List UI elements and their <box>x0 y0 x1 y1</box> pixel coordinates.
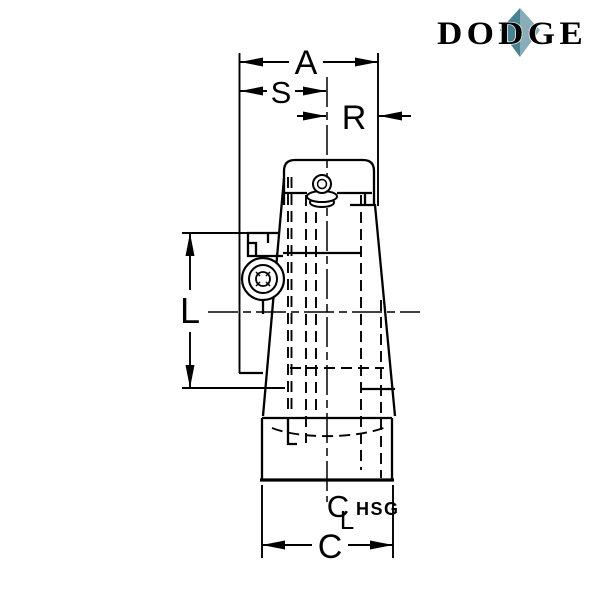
grease-zerk <box>307 175 337 207</box>
housing-outline <box>239 160 395 480</box>
dim-a-group: A <box>240 44 378 82</box>
base-inner-step <box>288 418 297 444</box>
setscrew-collar <box>242 258 284 300</box>
drawing-canvas: A S R L C C L HSG <box>0 0 600 600</box>
dim-s-label: S <box>271 75 292 110</box>
zerk-ball <box>313 175 331 193</box>
dim-r-label: R <box>342 99 367 137</box>
technical-drawing: A S R L C C L HSG <box>0 0 600 600</box>
dim-c-group: C <box>262 528 393 566</box>
dim-r-group: R <box>297 99 411 137</box>
dodge-logo: DODGE <box>437 8 587 57</box>
dim-l-group: L <box>180 233 200 388</box>
dim-c-label: C <box>318 528 343 566</box>
body-taper-right <box>375 205 395 416</box>
collar-mid-circle <box>249 265 277 293</box>
centerline-hsg-text: HSG <box>356 499 400 519</box>
hidden-lines <box>272 177 386 478</box>
dim-l-label: L <box>180 290 200 331</box>
dim-a-label: A <box>295 44 318 82</box>
centerline-symbol-l: L <box>340 505 354 535</box>
dodge-wordmark: DODGE <box>437 16 587 52</box>
